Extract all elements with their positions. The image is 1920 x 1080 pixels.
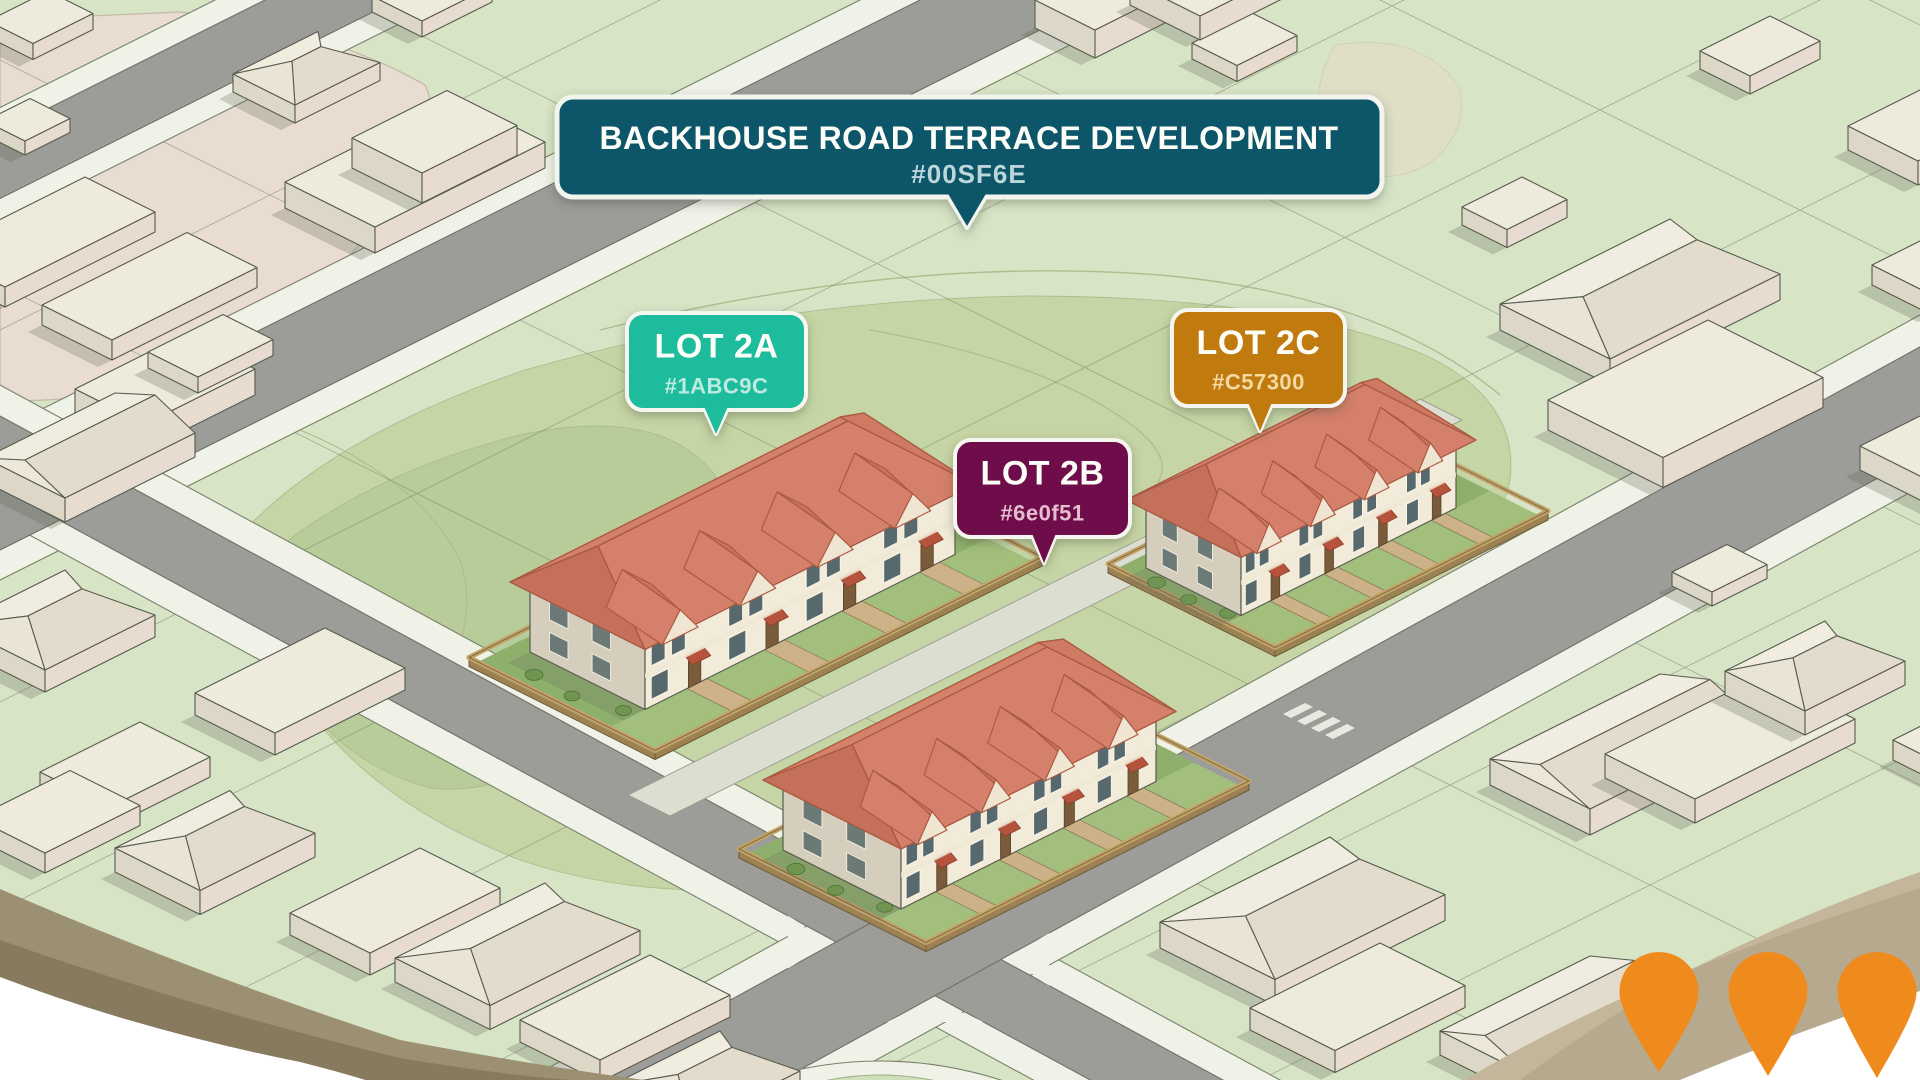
svg-text:#00SF6E: #00SF6E <box>911 159 1026 189</box>
svg-text:LOT 2A: LOT 2A <box>655 328 779 366</box>
svg-text:BACKHOUSE ROAD TERRACE DEVELOP: BACKHOUSE ROAD TERRACE DEVELOPMENT <box>600 120 1339 156</box>
svg-text:#1ABC9C: #1ABC9C <box>665 374 769 399</box>
svg-text:LOT 2B: LOT 2B <box>981 455 1105 493</box>
svg-text:#C57300: #C57300 <box>1212 370 1305 395</box>
svg-text:LOT 2C: LOT 2C <box>1197 324 1321 362</box>
svg-text:#6e0f51: #6e0f51 <box>1000 501 1084 526</box>
